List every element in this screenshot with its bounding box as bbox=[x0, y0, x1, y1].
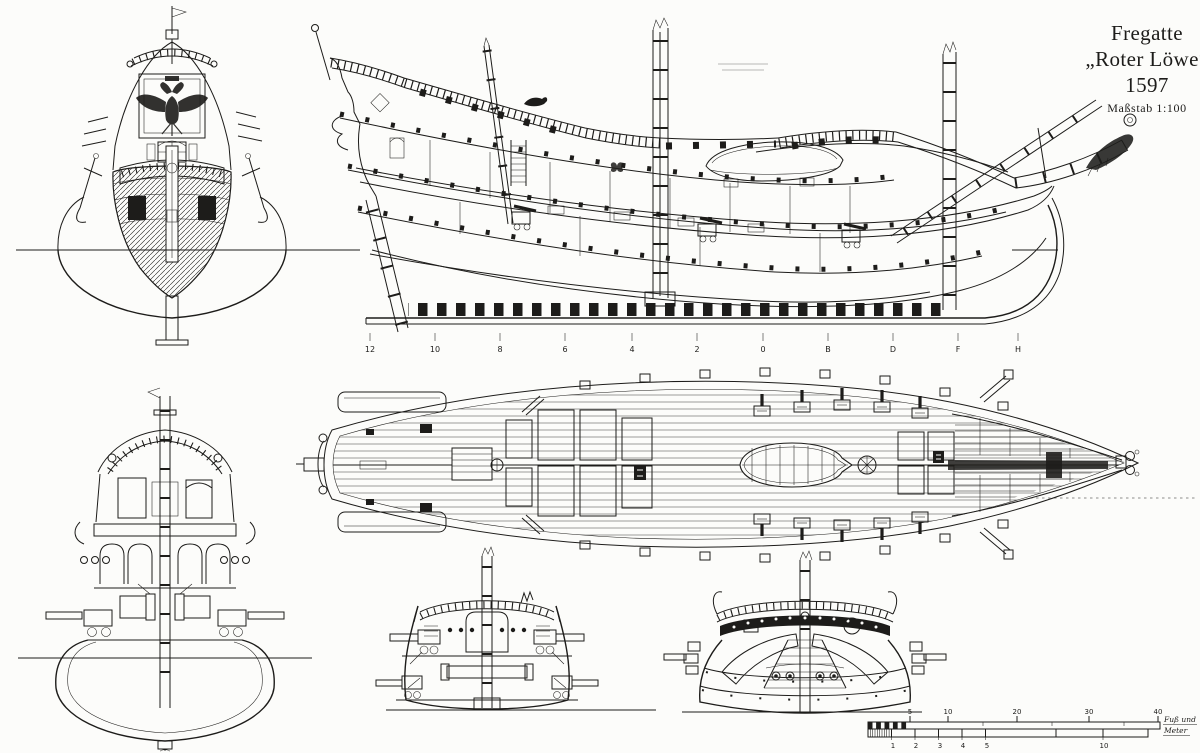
stern-hull-section bbox=[56, 640, 274, 741]
station-label: F bbox=[956, 345, 961, 354]
mizzen-mast bbox=[484, 38, 513, 224]
forecastle-section-view bbox=[664, 551, 946, 713]
feet-tick-label: 20 bbox=[1013, 708, 1022, 716]
meter-tick-label: 2 bbox=[914, 742, 918, 750]
stern-section-view bbox=[18, 388, 312, 751]
starboard-gunport bbox=[198, 196, 216, 220]
stern-crest-panel bbox=[136, 74, 208, 138]
meter-tick-label: 10 bbox=[1100, 742, 1109, 750]
scale-unit-label: Fuß und Meter bbox=[1163, 715, 1197, 736]
station-label: H bbox=[1015, 345, 1021, 354]
meter-tick-label: 3 bbox=[938, 742, 942, 750]
surveyors-mark bbox=[521, 592, 533, 603]
ship-name-title: „Roter Löwe“ bbox=[1085, 47, 1200, 71]
feet-tick-label: 40 bbox=[1154, 708, 1163, 716]
companion-skylight bbox=[452, 448, 492, 480]
side-elevation-view bbox=[306, 18, 1136, 332]
bowsprit bbox=[891, 100, 1102, 243]
fore-hatch-gratings bbox=[898, 432, 954, 494]
deck-cannon bbox=[842, 224, 866, 248]
feet-tick-label: 5 bbox=[908, 708, 912, 716]
meter-tick-label: 1 bbox=[891, 742, 895, 750]
station-label: D bbox=[890, 345, 896, 354]
butterfly-ornament bbox=[611, 162, 623, 172]
station-label: 6 bbox=[562, 345, 567, 354]
midship-section-view bbox=[376, 547, 656, 710]
port-anchor bbox=[77, 117, 108, 222]
feet-tick-label: 30 bbox=[1085, 708, 1094, 716]
port-gunport bbox=[128, 196, 146, 220]
lion-figurehead bbox=[1086, 134, 1133, 170]
ship-year-title: 1597 bbox=[1125, 73, 1169, 97]
deck-plan-view bbox=[296, 368, 1196, 603]
station-scale-row: 12 10 8 6 4 2 0 B D F H bbox=[365, 333, 1021, 354]
station-label: 4 bbox=[629, 345, 634, 354]
deck-furniture bbox=[511, 140, 866, 248]
stern-arcade bbox=[75, 522, 255, 584]
scale-bar: 5 10 20 30 40 1 2 3 4 5 10 Fuß und Meter bbox=[868, 708, 1197, 750]
feet-tick-label: 10 bbox=[944, 708, 953, 716]
bow-elevation-view bbox=[16, 6, 308, 345]
station-label: 0 bbox=[760, 345, 765, 354]
rail-lion-ornament bbox=[524, 97, 547, 106]
midship-mast bbox=[474, 547, 500, 709]
waist-gunports bbox=[666, 144, 776, 146]
station-label: 2 bbox=[694, 345, 699, 354]
deck-lines bbox=[340, 114, 1008, 302]
hawse-holes bbox=[772, 672, 838, 680]
beakhead-and-figurehead bbox=[1014, 114, 1136, 188]
midship-upper-cannons bbox=[390, 630, 584, 654]
station-label: B bbox=[825, 345, 831, 354]
station-label: 8 bbox=[497, 345, 502, 354]
ships-boat-on-deck bbox=[706, 142, 843, 187]
ship-type-title: Fregatte bbox=[1111, 21, 1183, 45]
ships-boat-plan bbox=[740, 443, 852, 487]
double-eagle-crest bbox=[136, 76, 208, 136]
scale-note: Maßstab 1:100 bbox=[1107, 101, 1186, 115]
blueprint-sheet: 12 10 8 6 4 2 0 B D F H bbox=[0, 0, 1200, 753]
forecastle-hull bbox=[700, 640, 911, 713]
bow-mast-and-flag bbox=[166, 6, 186, 64]
deck-cannon bbox=[698, 218, 722, 242]
station-label: 10 bbox=[430, 345, 440, 354]
unit-label-feet: Fuß und bbox=[1163, 715, 1196, 724]
fore-mast bbox=[943, 42, 956, 310]
meter-tick-label: 4 bbox=[961, 742, 966, 750]
title-block: Fregatte „Roter Löwe“ 1597 Maßstab 1:100 bbox=[1085, 21, 1200, 115]
ship-plan-drawing: 12 10 8 6 4 2 0 B D F H bbox=[0, 0, 1200, 753]
rails-and-balustrades bbox=[330, 58, 1016, 188]
floor-timbers-row bbox=[408, 303, 948, 316]
meter-tick-label: 5 bbox=[985, 742, 989, 750]
starboard-anchor bbox=[236, 112, 267, 222]
station-label: 12 bbox=[365, 345, 375, 354]
unit-label-meter: Meter bbox=[1163, 726, 1188, 735]
